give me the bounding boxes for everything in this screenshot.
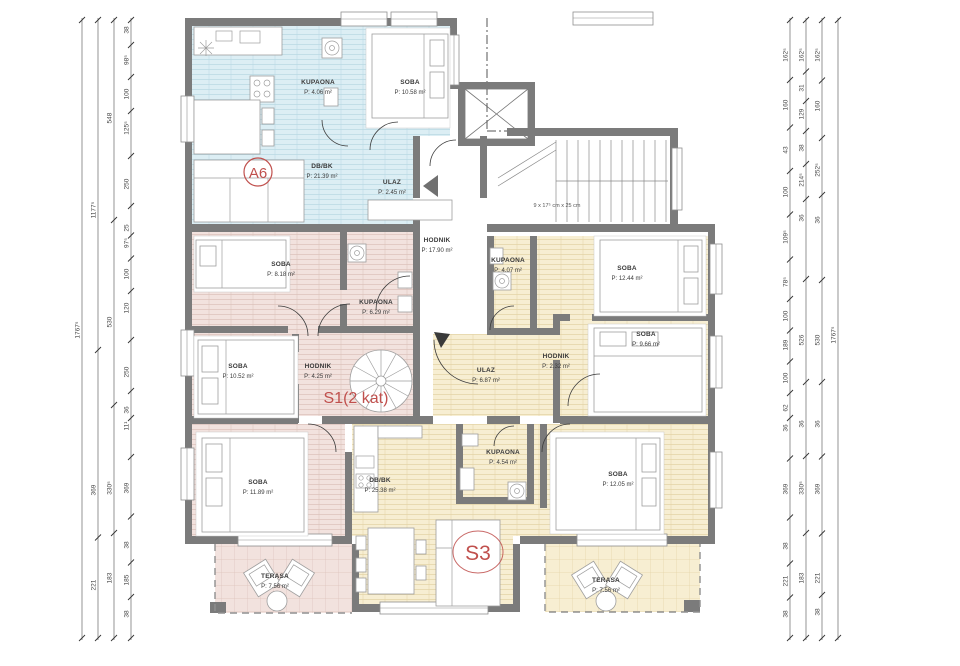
room-area: P: 12.05 m² xyxy=(602,482,633,488)
room-label: SOBA xyxy=(248,479,268,486)
dimension-label: 530 xyxy=(107,316,114,327)
room-area: P: 7.56 m² xyxy=(261,584,289,590)
dimension-label: 330⁵ xyxy=(799,481,806,495)
dimension-label: 38 xyxy=(815,608,822,616)
room-area: P: 4.25 m² xyxy=(304,374,332,380)
dimension-label: 530 xyxy=(815,334,822,345)
room-area: P: 6.29 m² xyxy=(362,310,390,316)
dimension-label: 214⁵ xyxy=(799,173,806,187)
dimension-label: 369 xyxy=(815,483,822,494)
room-label: KUPAONA xyxy=(359,299,393,306)
dimension-label: 100 xyxy=(783,372,790,383)
room-area: P: 10.58 m² xyxy=(394,90,425,96)
room-label: SOBA xyxy=(271,261,291,268)
dimension-label: 162⁵ xyxy=(815,48,822,62)
dimension-label: 36 xyxy=(815,420,822,428)
room-area: P: 17.90 m² xyxy=(421,248,452,254)
dimension-label: 125⁵ xyxy=(124,121,131,135)
staircase: 9 x 17⁵ cm x 25 cm xyxy=(487,136,670,224)
room-label: KUPAONA xyxy=(491,257,525,264)
dimension-label: 183 xyxy=(799,572,806,583)
dimension-label: 129 xyxy=(799,108,806,119)
room-label: SOBA xyxy=(617,265,637,272)
washing-machine-icon xyxy=(508,482,526,500)
dimension-label: 100 xyxy=(783,310,790,321)
room-label: HODNIK xyxy=(305,363,332,370)
dimension-label: 221 xyxy=(91,579,98,590)
dimension-label: 38 xyxy=(124,26,131,34)
dimension-label: 160 xyxy=(783,99,790,110)
dimension-column-right: 162⁵3112938214⁵3652636330⁵183 xyxy=(799,17,810,641)
dimension-column-left: 1177⁵369221 xyxy=(91,17,102,641)
room-area: P: 8.18 m² xyxy=(267,272,295,278)
dimension-label: 221 xyxy=(783,575,790,586)
dimension-label: 369 xyxy=(783,483,790,494)
dimension-label: 526 xyxy=(799,334,806,345)
dimension-label: 162⁵ xyxy=(783,48,790,62)
room-area: P: 25.38 m² xyxy=(364,488,395,494)
room-area: P: 2.32 m² xyxy=(542,364,570,370)
dimension-label: 11¹ xyxy=(124,421,131,431)
dimension-label: 98⁵ xyxy=(124,55,131,65)
room-area: P: 4.07 m² xyxy=(494,268,522,274)
stairs-note: 9 x 17⁵ cm x 25 cm xyxy=(534,202,581,209)
room-label: SOBA xyxy=(636,331,656,338)
dimension-label: 100 xyxy=(124,88,131,99)
dimension-label: 36 xyxy=(124,406,131,414)
washing-machine-icon xyxy=(322,38,342,58)
dimension-label: 160 xyxy=(815,100,822,111)
dimension-label: 252⁵ xyxy=(815,163,822,177)
room-label: DB/BK xyxy=(369,477,391,484)
room-label: SOBA xyxy=(228,363,248,370)
dimension-label: 250 xyxy=(124,366,131,377)
bed-soba-1058 xyxy=(366,28,450,128)
room-label: HODNIK xyxy=(424,237,451,244)
dimension-label: 183 xyxy=(107,572,114,583)
washing-machine-icon xyxy=(493,272,511,290)
room-area: P: 6.87 m² xyxy=(472,378,500,384)
dimension-column-right: 162⁵16043100109⁵78⁵100189100623636938221… xyxy=(783,17,794,641)
dimension-label: 38 xyxy=(124,610,131,618)
dimension-label: 36 xyxy=(815,216,822,224)
room-area: P: 4.54 m² xyxy=(489,460,517,466)
dimension-column-left: 548530330⁵183 xyxy=(107,17,118,641)
room-label: DB/BK xyxy=(311,163,333,170)
dimension-label: 38 xyxy=(799,144,806,152)
room-area: P: 12.44 m² xyxy=(611,276,642,282)
dimension-label: 1767⁵ xyxy=(831,326,838,343)
room-label: ULAZ xyxy=(383,179,401,186)
entrance-arrow xyxy=(423,175,438,197)
dimension-column-right: 1767⁵ xyxy=(831,17,842,641)
dimension-label: 31 xyxy=(799,84,806,92)
room-area: P: 21.39 m² xyxy=(306,174,337,180)
dimension-label: 221 xyxy=(815,572,822,583)
dimension-label: 548 xyxy=(107,112,114,123)
wardrobe xyxy=(368,200,452,220)
room-area: P: 9.66 m² xyxy=(632,342,660,348)
floor-plan-canvas: 9 x 17⁵ cm x 25 cm xyxy=(0,0,960,666)
room-label: KUPAONA xyxy=(301,79,335,86)
room-area: P: 7.56 m² xyxy=(592,588,620,594)
snowflake-icon xyxy=(198,40,214,56)
room-label: SOBA xyxy=(608,471,628,478)
unit-label-s1: S1(2 kat) xyxy=(324,390,389,407)
dimension-label: 109⁵ xyxy=(783,230,790,244)
unit-label-a6: A6 xyxy=(249,165,267,182)
room-area: P: 4.06 m² xyxy=(304,90,332,96)
dimension-label: 38 xyxy=(783,542,790,550)
dimension-label: 25 xyxy=(124,224,131,232)
dimension-column-left: 1767⁵ xyxy=(75,17,86,641)
dimension-label: 100 xyxy=(124,268,131,279)
dimension-label: 330⁵ xyxy=(107,481,114,495)
dimension-label: 100 xyxy=(783,186,790,197)
room-area: P: 10.52 m² xyxy=(222,374,253,380)
room-label: TERASA xyxy=(261,573,289,580)
unit-label-s3: S3 xyxy=(465,542,491,565)
room-label: HODNIK xyxy=(543,353,570,360)
dimension-label: 97⁵ xyxy=(124,238,131,248)
dimension-label: 78⁵ xyxy=(783,277,790,287)
dimension-label: 36 xyxy=(799,420,806,428)
room-label: SOBA xyxy=(400,79,420,86)
dimension-label: 369 xyxy=(91,484,98,495)
dimension-column-right: 162⁵160252⁵365303636922138 xyxy=(815,17,826,641)
dimension-label: 62 xyxy=(783,404,790,412)
sink xyxy=(398,272,412,288)
dimension-label: 36 xyxy=(783,424,790,432)
room-label: KUPAONA xyxy=(486,449,520,456)
sink xyxy=(462,434,478,446)
dimension-label: 189 xyxy=(783,339,790,350)
toilet xyxy=(460,468,474,490)
dimension-label: 162⁵ xyxy=(799,48,806,62)
dimension-label: 38 xyxy=(783,610,790,618)
room-area: P: 2.45 m² xyxy=(378,190,406,196)
dimension-label: 38 xyxy=(124,541,131,549)
dimension-label: 369 xyxy=(124,482,131,493)
floor-plan: 9 x 17⁵ cm x 25 cm xyxy=(0,0,960,666)
room-label: TERASA xyxy=(592,577,620,584)
dimension-label: 36 xyxy=(799,214,806,222)
dimension-label: 1767⁵ xyxy=(75,321,82,338)
dimension-column-left: 3898⁵100125⁵2502597⁵1001202503611¹369381… xyxy=(124,17,135,641)
dimension-label: 43 xyxy=(783,146,790,154)
washing-machine-icon xyxy=(348,244,366,262)
room-area: P: 11.89 m² xyxy=(243,490,274,496)
toilet xyxy=(398,296,412,312)
dimension-label: 1177⁵ xyxy=(91,201,98,218)
room-label: ULAZ xyxy=(477,367,495,374)
dimension-label: 120 xyxy=(124,302,131,313)
dimension-label: 250 xyxy=(124,178,131,189)
dimension-label: 185 xyxy=(124,574,131,585)
